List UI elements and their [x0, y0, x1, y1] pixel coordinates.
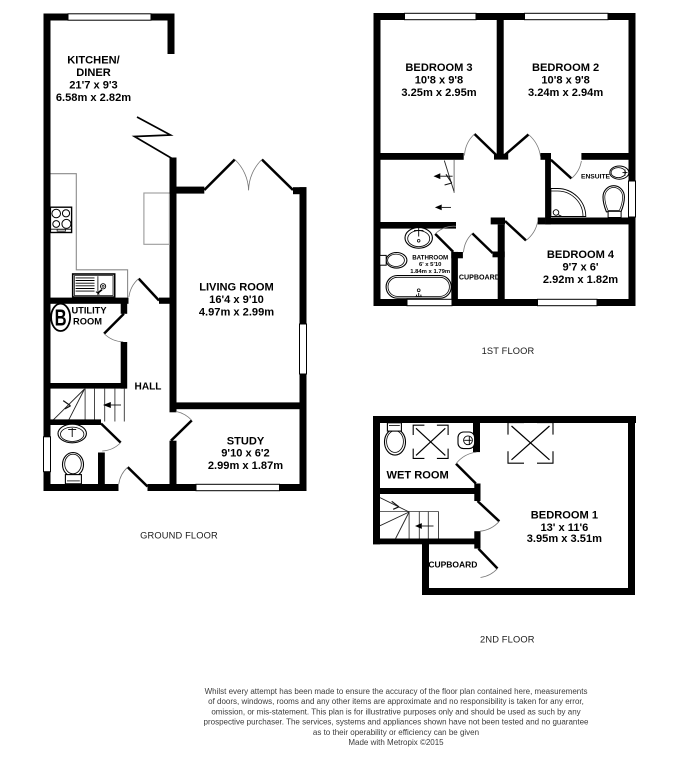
svg-text:KITCHEN/: KITCHEN/	[67, 55, 119, 67]
svg-text:HALL: HALL	[135, 381, 162, 392]
svg-text:ENSUITE: ENSUITE	[581, 173, 611, 180]
svg-text:as to their operability or eff: as to their operability or efficiency ca…	[313, 728, 479, 737]
svg-text:3.24m x 2.94m: 3.24m x 2.94m	[528, 87, 603, 99]
svg-text:BEDROOM 3: BEDROOM 3	[405, 62, 472, 74]
svg-text:10'8 x 9'8: 10'8 x 9'8	[415, 75, 463, 87]
svg-text:ROOM: ROOM	[73, 317, 102, 327]
svg-text:10'8 x 9'8: 10'8 x 9'8	[541, 75, 589, 87]
svg-text:BEDROOM 2: BEDROOM 2	[532, 62, 599, 74]
svg-text:CUPBOARD: CUPBOARD	[459, 274, 500, 282]
svg-text:1ST FLOOR: 1ST FLOOR	[482, 346, 535, 356]
svg-text:omission, or mis-statement. Th: omission, or mis-statement. This plan is…	[211, 707, 580, 716]
svg-text:21'7 x 9'3: 21'7 x 9'3	[69, 80, 117, 92]
svg-text:13' x 11'6: 13' x 11'6	[540, 522, 588, 534]
svg-text:16'4 x 9'10: 16'4 x 9'10	[209, 294, 264, 306]
svg-text:GROUND FLOOR: GROUND FLOOR	[140, 531, 218, 541]
svg-text:2.92m x 1.82m: 2.92m x 1.82m	[543, 274, 618, 286]
svg-text:UTILITY: UTILITY	[71, 305, 107, 315]
svg-text:9'7 x 6': 9'7 x 6'	[562, 262, 598, 274]
svg-text:2.99m x 1.87m: 2.99m x 1.87m	[208, 460, 283, 472]
svg-text:prospective purchaser. The ser: prospective purchaser. The services, sys…	[204, 718, 590, 727]
svg-text:Whilst every attempt has been: Whilst every attempt has been made to en…	[205, 687, 588, 696]
svg-text:BEDROOM 1: BEDROOM 1	[531, 510, 598, 522]
svg-text:STUDY: STUDY	[227, 435, 265, 447]
svg-text:Made with Metropix ©2015: Made with Metropix ©2015	[348, 738, 444, 747]
svg-text:LIVING ROOM: LIVING ROOM	[199, 282, 274, 294]
svg-text:6' x 5'10: 6' x 5'10	[419, 262, 442, 268]
svg-text:4.97m x 2.99m: 4.97m x 2.99m	[199, 306, 274, 318]
svg-text:WET ROOM: WET ROOM	[386, 470, 448, 482]
svg-text:2ND FLOOR: 2ND FLOOR	[480, 635, 535, 645]
svg-text:BATHROOM: BATHROOM	[412, 254, 448, 261]
svg-text:CUPBOARD: CUPBOARD	[428, 560, 477, 570]
svg-text:9'10 x 6'2: 9'10 x 6'2	[221, 448, 269, 460]
svg-text:3.95m x 3.51m: 3.95m x 3.51m	[527, 533, 602, 545]
svg-text:B: B	[55, 305, 67, 331]
svg-text:3.25m x 2.95m: 3.25m x 2.95m	[401, 87, 476, 99]
svg-text:6.58m x 2.82m: 6.58m x 2.82m	[56, 92, 131, 104]
svg-text:1.84m x 1.79m: 1.84m x 1.79m	[410, 269, 450, 275]
svg-text:DINER: DINER	[76, 67, 111, 79]
svg-text:of doors, windows, rooms and a: of doors, windows, rooms and any other i…	[208, 697, 584, 706]
svg-text:BEDROOM 4: BEDROOM 4	[547, 249, 615, 261]
